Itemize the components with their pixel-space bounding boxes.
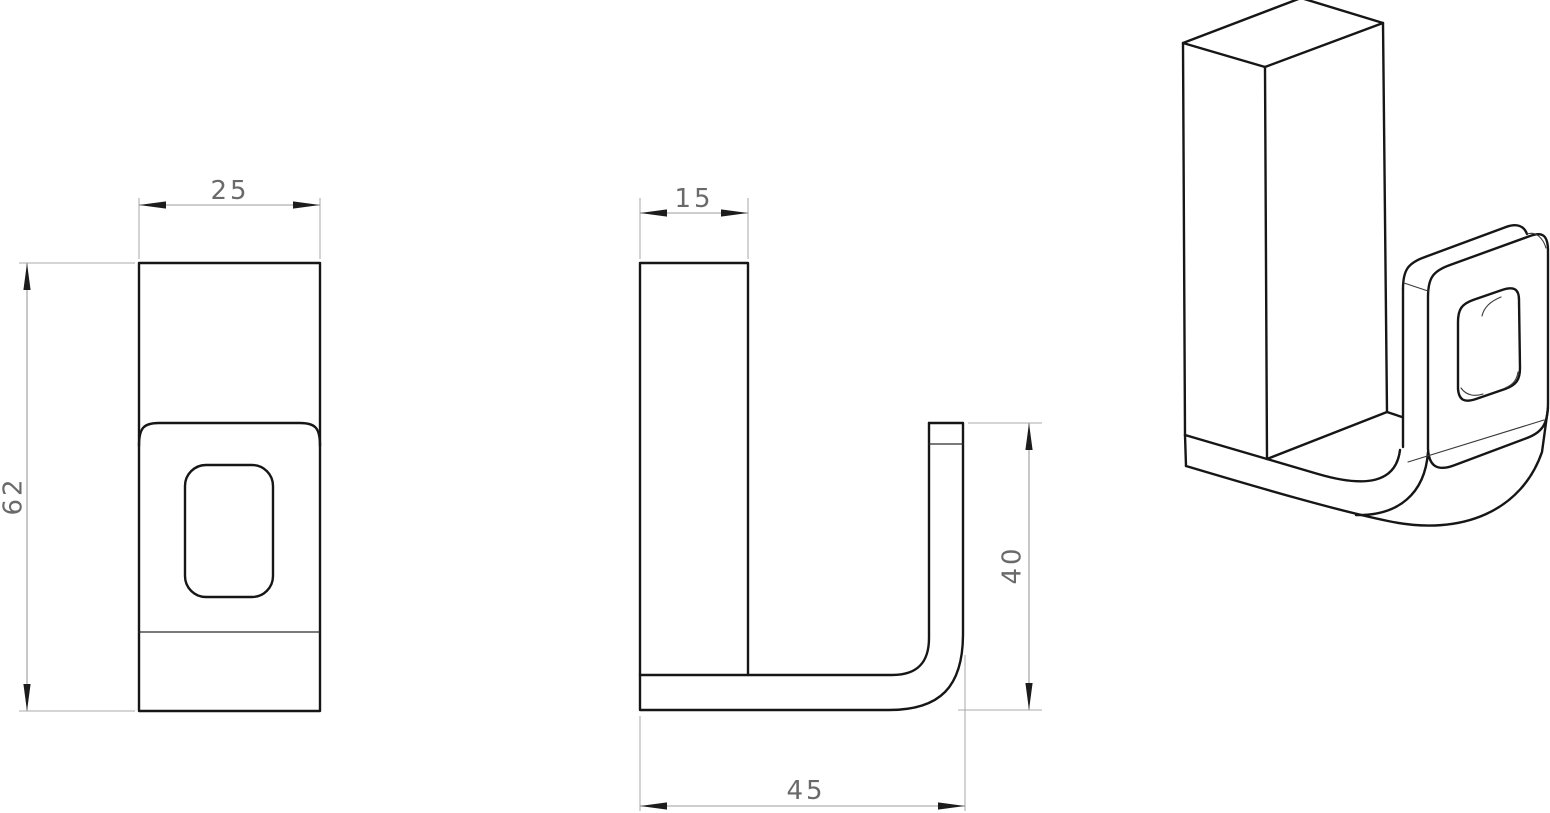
iso-plate-back-top-edge: [1403, 225, 1527, 289]
iso-slot-inner-wall-top: [1482, 297, 1501, 316]
iso-bar-right-edge: [1383, 23, 1387, 412]
iso-base-left-cap: [1185, 435, 1186, 466]
iso-plate-front-face: [1428, 234, 1548, 468]
iso-slot-outline: [1458, 288, 1520, 400]
front-slot-outline: [185, 465, 273, 597]
dimension-depth: 45: [640, 655, 965, 811]
dimension-front-width: 25: [139, 176, 320, 259]
drawing-svg: 25 62 15: [0, 0, 1550, 813]
front-body-outline: [139, 263, 320, 711]
front-plate-top-edge: [139, 423, 320, 446]
iso-outer-bottom-silhouette: [1186, 408, 1548, 526]
arrowhead-up-icon: [1025, 423, 1032, 450]
side-bar-outline: [640, 263, 748, 675]
dimension-front-height: 62: [0, 263, 135, 711]
arrowhead-down-icon: [23, 684, 30, 711]
iso-slot-inner-wall-bottom: [1461, 388, 1483, 395]
side-hook-inner-outline: [640, 423, 929, 675]
iso-bar-top-face: [1183, 0, 1383, 67]
dimension-label-62: 62: [0, 476, 29, 515]
iso-bar-front-edge: [1265, 67, 1267, 459]
arrowhead-right-icon: [293, 201, 320, 208]
extension-lines-62: [19, 263, 135, 711]
iso-bend-wrap-curve: [1356, 452, 1428, 515]
arrowhead-right-icon: [938, 802, 965, 809]
iso-bar-left-edge: [1183, 43, 1185, 435]
technical-drawing-canvas: 25 62 15: [0, 0, 1550, 813]
dimension-label-45: 45: [786, 776, 825, 806]
dimension-label-25: 25: [210, 176, 249, 206]
isometric-view: [1183, 0, 1548, 526]
arrowhead-right-icon: [721, 209, 748, 216]
iso-bar-bottom-edges: [1185, 412, 1387, 459]
arrowhead-left-icon: [139, 201, 166, 208]
dimension-hook-height: 40: [958, 423, 1042, 710]
extension-lines-25: [139, 198, 320, 259]
dimension-label-15: 15: [674, 184, 713, 214]
iso-base-far-edge-stub: [1387, 412, 1402, 417]
dimension-side-thickness: 15: [640, 184, 748, 259]
dimension-label-40: 40: [998, 545, 1028, 584]
side-hook-outer-outline: [640, 423, 963, 710]
iso-plate-corner-connector-left: [1404, 283, 1428, 291]
iso-inner-bend-near-curve: [1267, 450, 1400, 481]
arrowhead-down-icon: [1025, 683, 1032, 710]
front-view: 25 62: [0, 176, 320, 711]
arrowhead-left-icon: [640, 209, 667, 216]
arrowhead-left-icon: [640, 802, 667, 809]
arrowhead-up-icon: [23, 263, 30, 290]
side-view: 15 40 45: [640, 184, 1042, 811]
